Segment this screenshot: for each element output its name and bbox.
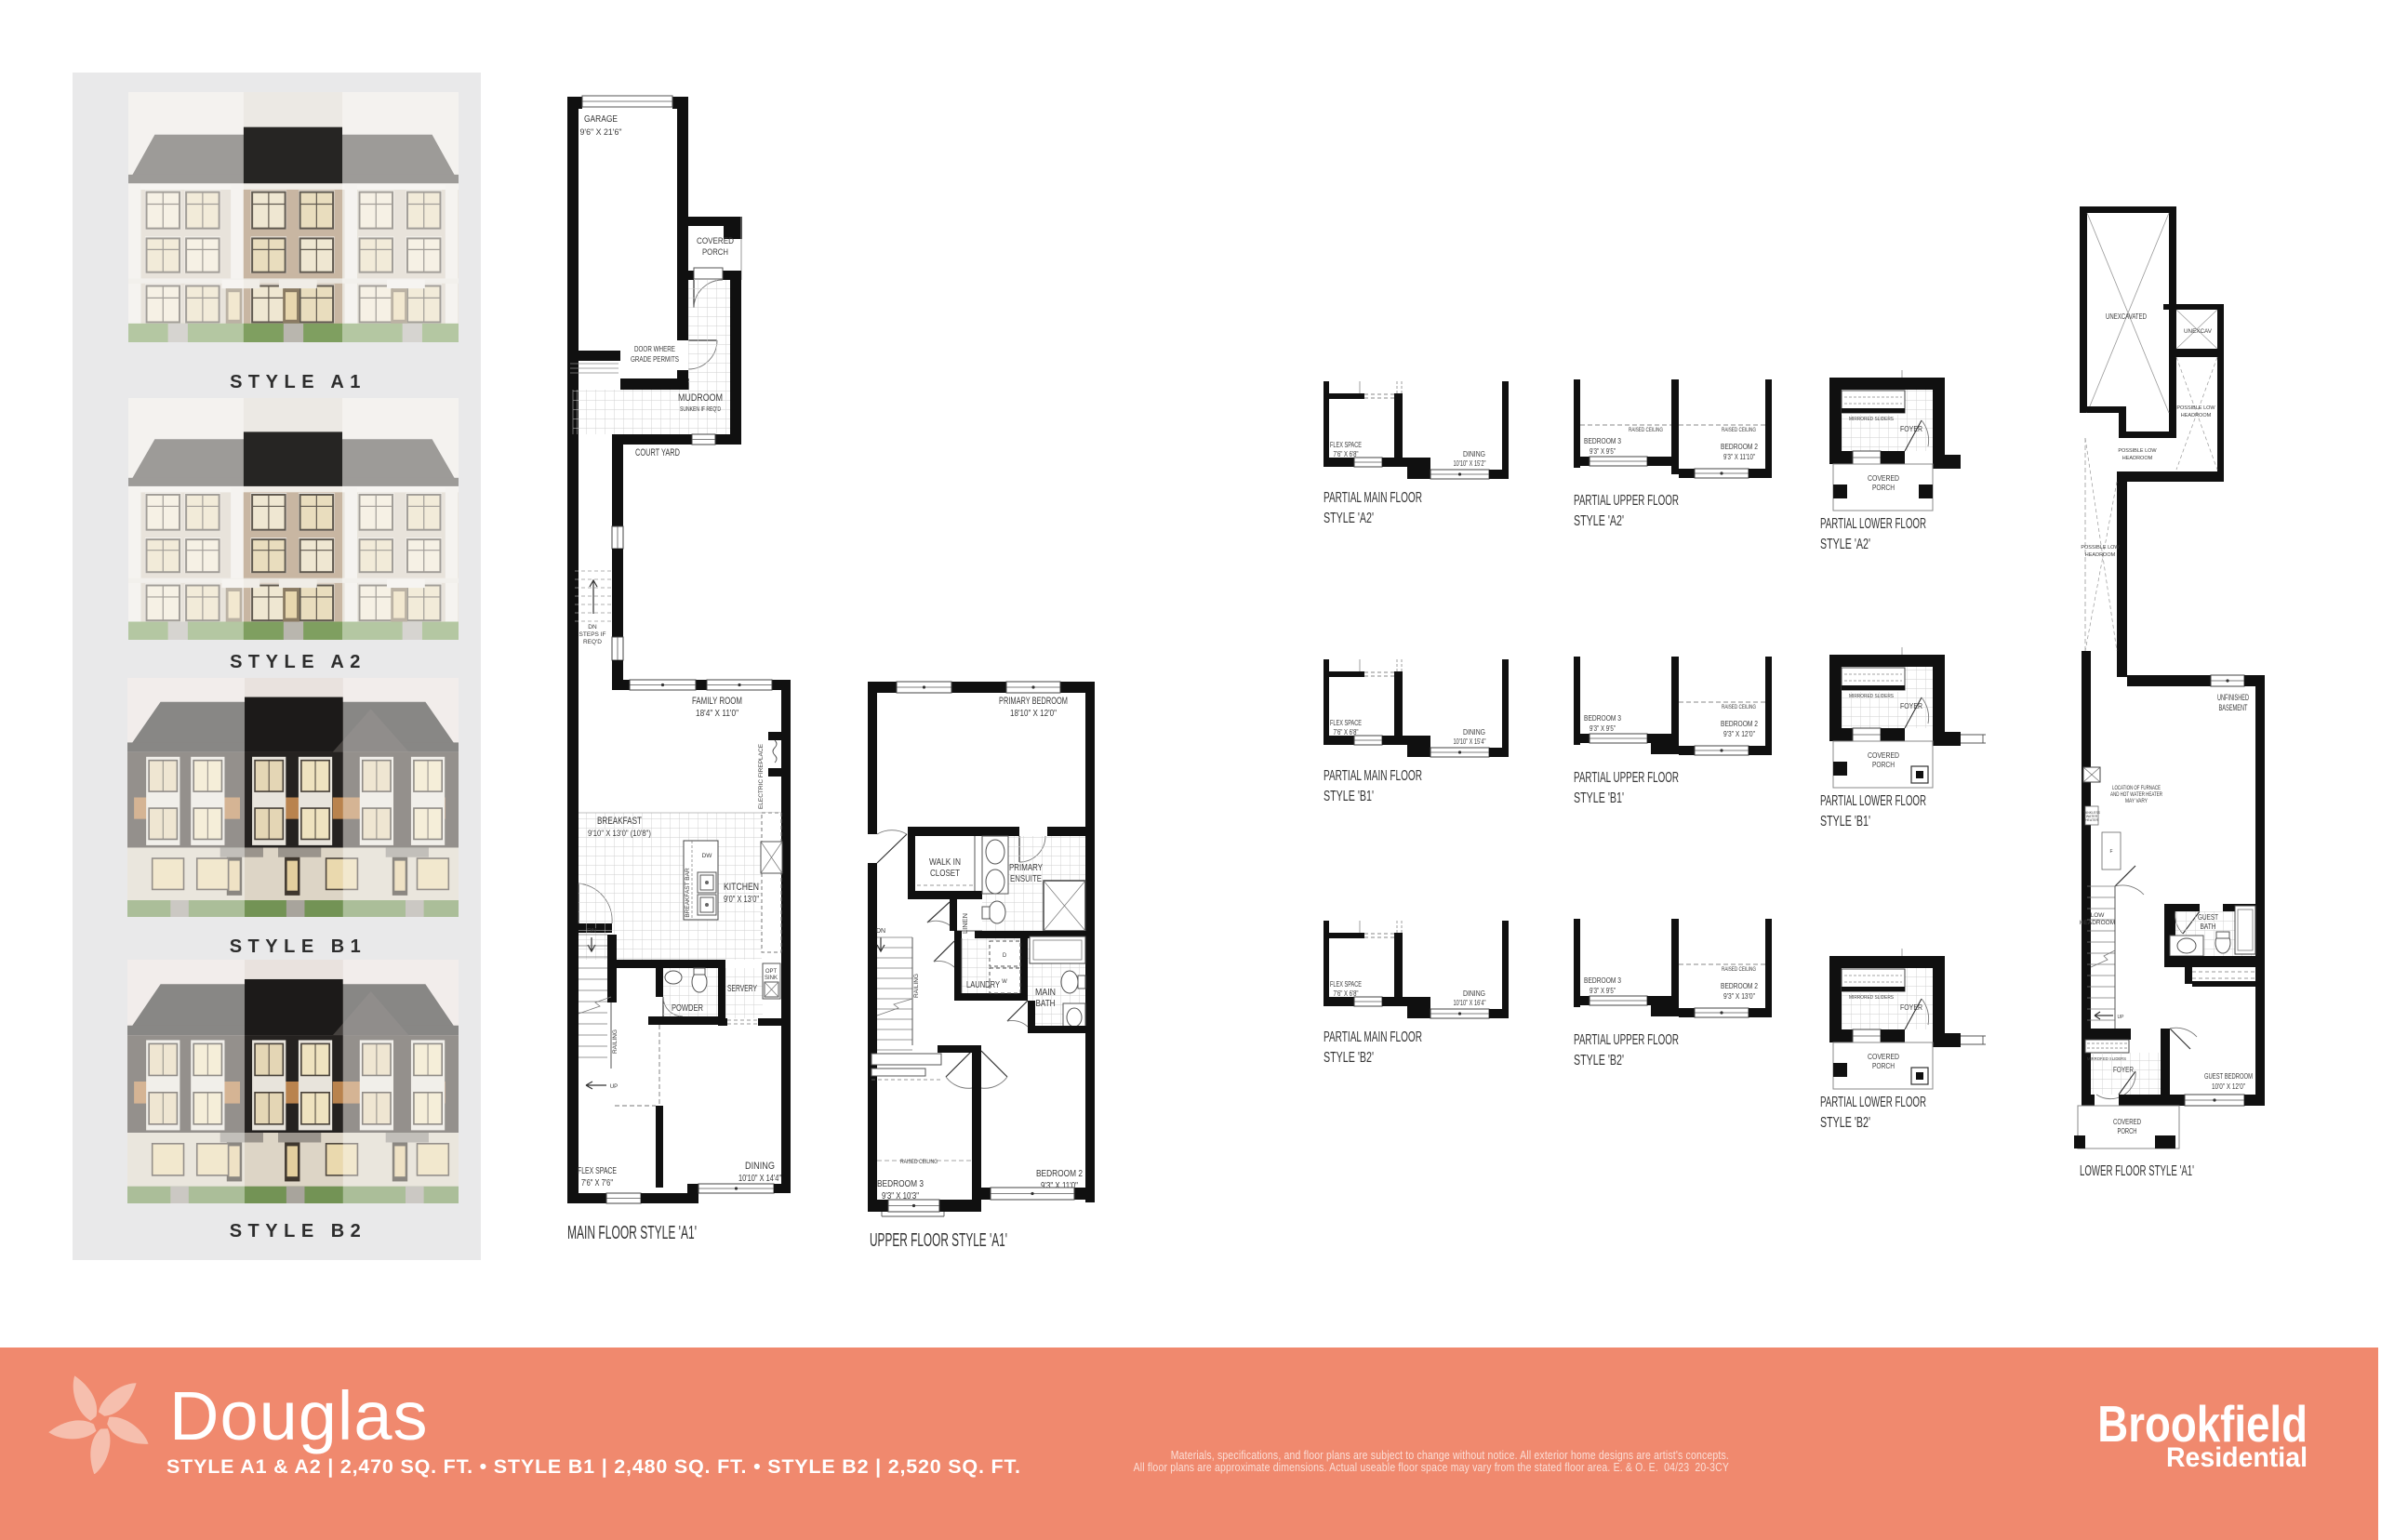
- svg-text:7'6" X 7'6": 7'6" X 7'6": [581, 1178, 613, 1188]
- svg-text:STYLE 'B1': STYLE 'B1': [1820, 814, 1870, 830]
- svg-text:BATH: BATH: [1036, 998, 1056, 1009]
- svg-text:SUNKEN IF REQ'D: SUNKEN IF REQ'D: [680, 405, 721, 413]
- svg-text:MAIN FLOOR STYLE 'A1': MAIN FLOOR STYLE 'A1': [567, 1223, 697, 1243]
- svg-text:MIRRORED SLIDERS: MIRRORED SLIDERS: [1849, 995, 1895, 1001]
- svg-text:9'10" X 13'0" (10'8"): 9'10" X 13'0" (10'8"): [588, 829, 651, 839]
- svg-text:BEDROOM 3: BEDROOM 3: [1584, 436, 1621, 445]
- svg-text:PARTIAL MAIN FLOOR: PARTIAL MAIN FLOOR: [1324, 768, 1422, 784]
- svg-text:BATH: BATH: [2201, 923, 2216, 931]
- svg-text:HEADROOM: HEADROOM: [2085, 552, 2116, 558]
- svg-text:MIRRORED SLIDERS: MIRRORED SLIDERS: [1849, 417, 1895, 422]
- svg-text:STYLE 'A2': STYLE 'A2': [1324, 511, 1374, 526]
- svg-text:BASEMENT: BASEMENT: [2219, 703, 2248, 712]
- svg-text:BEDROOM 3: BEDROOM 3: [1584, 713, 1621, 723]
- svg-text:9'3" X 12'0": 9'3" X 12'0": [1723, 730, 1755, 738]
- svg-text:7'6" X 6'8": 7'6" X 6'8": [1334, 989, 1359, 998]
- svg-text:STYLE 'B1': STYLE 'B1': [1574, 790, 1624, 806]
- svg-text:GUEST BEDROOM: GUEST BEDROOM: [2204, 1071, 2253, 1081]
- svg-text:PORCH: PORCH: [2118, 1127, 2137, 1135]
- svg-text:BEDROOM 2: BEDROOM 2: [1721, 981, 1758, 990]
- svg-text:LAUNDRY: LAUNDRY: [966, 980, 1000, 990]
- svg-text:COVERED: COVERED: [1868, 474, 1899, 483]
- svg-text:ELECTRIC FIREPLACE: ELECTRIC FIREPLACE: [758, 743, 765, 809]
- svg-text:PARTIAL UPPER FLOOR: PARTIAL UPPER FLOOR: [1574, 1032, 1679, 1048]
- svg-text:D: D: [1003, 953, 1007, 959]
- svg-text:UNFINISHED: UNFINISHED: [2217, 693, 2249, 702]
- svg-text:PARTIAL UPPER FLOOR: PARTIAL UPPER FLOOR: [1574, 770, 1679, 786]
- svg-text:BREAKFAST: BREAKFAST: [597, 816, 642, 827]
- svg-text:9'0" X 13'0": 9'0" X 13'0": [724, 895, 759, 905]
- svg-text:10'0" X 12'0": 10'0" X 12'0": [2212, 1082, 2245, 1091]
- svg-text:MIRRORED SLIDERS: MIRRORED SLIDERS: [1849, 694, 1895, 699]
- svg-text:KITCHEN: KITCHEN: [724, 882, 759, 893]
- svg-text:PRIMARY: PRIMARY: [1009, 862, 1043, 873]
- svg-text:9'3" X 9'5": 9'3" X 9'5": [1590, 987, 1616, 995]
- svg-text:FOYER: FOYER: [1900, 425, 1922, 433]
- svg-text:10'10" X 15'2": 10'10" X 15'2": [1454, 459, 1486, 468]
- svg-text:DN: DN: [876, 928, 885, 935]
- svg-text:STYLE 'B2': STYLE 'B2': [1324, 1050, 1374, 1066]
- svg-text:PORCH: PORCH: [702, 247, 728, 258]
- svg-text:PRIMARY BEDROOM: PRIMARY BEDROOM: [999, 696, 1068, 707]
- svg-text:ENSUITE: ENSUITE: [1010, 873, 1042, 884]
- svg-text:DINING: DINING: [1463, 989, 1485, 998]
- svg-text:HEATER: HEATER: [2085, 818, 2098, 822]
- svg-text:PORCH: PORCH: [1872, 761, 1895, 769]
- svg-text:PARTIAL MAIN FLOOR: PARTIAL MAIN FLOOR: [1324, 1029, 1422, 1045]
- svg-text:RAISED CEILING: RAISED CEILING: [1722, 967, 1756, 973]
- svg-text:RAILING: RAILING: [612, 1029, 619, 1054]
- svg-text:FLEX SPACE: FLEX SPACE: [1330, 718, 1362, 727]
- svg-text:BEDROOM 2: BEDROOM 2: [1721, 442, 1758, 451]
- svg-text:MUDROOM: MUDROOM: [678, 392, 723, 404]
- svg-text:BEDROOM 2: BEDROOM 2: [1036, 1168, 1083, 1179]
- svg-text:GARAGE: GARAGE: [584, 113, 618, 125]
- svg-text:7'6" X 6'8": 7'6" X 6'8": [1334, 728, 1359, 737]
- svg-text:LOWER FLOOR STYLE 'A1': LOWER FLOOR STYLE 'A1': [2080, 1163, 2194, 1179]
- svg-text:DINING: DINING: [745, 1161, 775, 1172]
- svg-text:POSSIBLE LOW: POSSIBLE LOW: [2176, 405, 2215, 411]
- svg-text:COVERED: COVERED: [697, 236, 734, 246]
- svg-text:9'3" X 11'10": 9'3" X 11'10": [1723, 453, 1755, 461]
- svg-text:7'6" X 6'8": 7'6" X 6'8": [1334, 450, 1359, 458]
- svg-text:SINK: SINK: [765, 976, 778, 981]
- svg-text:BEDROOM 3: BEDROOM 3: [877, 1178, 924, 1189]
- svg-text:PARTIAL UPPER FLOOR: PARTIAL UPPER FLOOR: [1574, 493, 1679, 509]
- svg-text:PORCH: PORCH: [1872, 1062, 1895, 1070]
- svg-text:PARTIAL MAIN FLOOR: PARTIAL MAIN FLOOR: [1324, 490, 1422, 506]
- svg-text:FLEX SPACE: FLEX SPACE: [1330, 440, 1362, 449]
- svg-text:DN: DN: [587, 928, 596, 935]
- svg-text:FOYER: FOYER: [1900, 1003, 1922, 1012]
- svg-text:MAIN: MAIN: [1035, 987, 1056, 998]
- svg-text:UP: UP: [2118, 1015, 2125, 1020]
- svg-text:PARTIAL LOWER FLOOR: PARTIAL LOWER FLOOR: [1820, 1095, 1926, 1110]
- svg-text:LOW: LOW: [2091, 912, 2106, 919]
- svg-text:COVERED: COVERED: [1868, 1053, 1899, 1061]
- svg-text:9'6" X 21'6": 9'6" X 21'6": [580, 127, 622, 138]
- svg-text:STYLE 'A2': STYLE 'A2': [1574, 513, 1624, 529]
- svg-text:DINING: DINING: [1463, 449, 1485, 458]
- svg-text:RAISED CEILING: RAISED CEILING: [900, 1159, 938, 1165]
- svg-text:FLEX SPACE: FLEX SPACE: [578, 1165, 617, 1176]
- svg-text:PARTIAL LOWER FLOOR: PARTIAL LOWER FLOOR: [1820, 516, 1926, 532]
- svg-text:9'3" X 9'5": 9'3" X 9'5": [1590, 447, 1616, 456]
- svg-text:COVERED: COVERED: [2113, 1118, 2141, 1126]
- svg-text:DINING: DINING: [1463, 727, 1485, 737]
- svg-text:AND HOT WATER HEATER: AND HOT WATER HEATER: [2110, 792, 2162, 798]
- svg-text:SERVERY: SERVERY: [727, 984, 757, 994]
- svg-text:PORCH: PORCH: [1872, 484, 1895, 492]
- svg-text:STYLE 'B2': STYLE 'B2': [1820, 1115, 1870, 1131]
- svg-text:MAY VARY: MAY VARY: [2125, 799, 2148, 804]
- svg-text:10'10" X 15'4": 10'10" X 15'4": [1454, 737, 1486, 746]
- svg-text:DN: DN: [588, 624, 597, 631]
- svg-text:RAISED CEILING: RAISED CEILING: [1629, 428, 1663, 433]
- svg-text:OPT: OPT: [765, 969, 778, 975]
- svg-text:10'10" X 14'4": 10'10" X 14'4": [738, 1174, 781, 1184]
- svg-text:POWDER: POWDER: [672, 1003, 703, 1014]
- svg-text:FAMILY ROOM: FAMILY ROOM: [692, 696, 742, 707]
- svg-text:GUEST: GUEST: [2198, 913, 2218, 922]
- svg-text:9'3" X 9'5": 9'3" X 9'5": [1590, 724, 1616, 733]
- svg-text:BREAKFAST BAR: BREAKFAST BAR: [685, 868, 691, 918]
- svg-text:RAISED CEILING: RAISED CEILING: [1722, 428, 1756, 433]
- svg-text:CLOSET: CLOSET: [930, 868, 960, 879]
- svg-text:RAISED CEILING: RAISED CEILING: [1722, 705, 1756, 710]
- svg-text:STEPS IF: STEPS IF: [579, 631, 606, 638]
- svg-text:BEDROOM 2: BEDROOM 2: [1721, 719, 1758, 728]
- svg-text:UNEXCAVATED: UNEXCAVATED: [2106, 312, 2147, 321]
- svg-text:UPPER FLOOR STYLE 'A1': UPPER FLOOR STYLE 'A1': [870, 1230, 1007, 1251]
- svg-text:18'4" X 11'0": 18'4" X 11'0": [696, 709, 738, 719]
- svg-text:HEADROOM: HEADROOM: [2181, 413, 2212, 418]
- svg-text:STYLE 'B2': STYLE 'B2': [1574, 1053, 1624, 1069]
- svg-text:GRADE PERMITS: GRADE PERMITS: [631, 354, 679, 364]
- svg-text:REQ'D: REQ'D: [583, 639, 602, 645]
- svg-text:FOYER: FOYER: [2113, 1066, 2134, 1074]
- svg-text:DW: DW: [702, 853, 713, 859]
- svg-text:COVERED: COVERED: [1868, 751, 1899, 760]
- svg-text:18'10" X 12'0": 18'10" X 12'0": [1010, 709, 1057, 719]
- svg-text:WALK IN: WALK IN: [929, 856, 961, 868]
- svg-text:POSSIBLE LOW: POSSIBLE LOW: [2081, 545, 2120, 551]
- svg-text:10'10" X 16'4": 10'10" X 16'4": [1454, 999, 1486, 1007]
- svg-text:UP: UP: [610, 1084, 618, 1090]
- svg-text:FOYER: FOYER: [1900, 702, 1922, 710]
- svg-text:BEDROOM 3: BEDROOM 3: [1584, 976, 1621, 985]
- svg-text:9'3" X 13'0": 9'3" X 13'0": [1723, 992, 1755, 1001]
- svg-text:HEADROOM: HEADROOM: [2122, 456, 2153, 461]
- svg-text:HEADROOM: HEADROOM: [2080, 920, 2115, 926]
- svg-text:FLEX SPACE: FLEX SPACE: [1330, 979, 1362, 989]
- svg-text:POSSIBLE LOW: POSSIBLE LOW: [2118, 448, 2157, 454]
- svg-text:RAILING: RAILING: [913, 974, 920, 998]
- svg-text:F: F: [2109, 849, 2112, 855]
- svg-text:UNEXCAV: UNEXCAV: [2184, 329, 2212, 335]
- svg-text:PARTIAL LOWER FLOOR: PARTIAL LOWER FLOOR: [1820, 793, 1926, 809]
- svg-text:COURT YARD: COURT YARD: [635, 447, 680, 458]
- svg-text:DOOR WHERE: DOOR WHERE: [634, 344, 675, 353]
- svg-text:W: W: [1002, 979, 1007, 985]
- svg-text:STYLE 'A2': STYLE 'A2': [1820, 537, 1870, 552]
- svg-text:STYLE 'B1': STYLE 'B1': [1324, 789, 1374, 804]
- svg-text:LOCATION OF FURNACE: LOCATION OF FURNACE: [2112, 786, 2161, 791]
